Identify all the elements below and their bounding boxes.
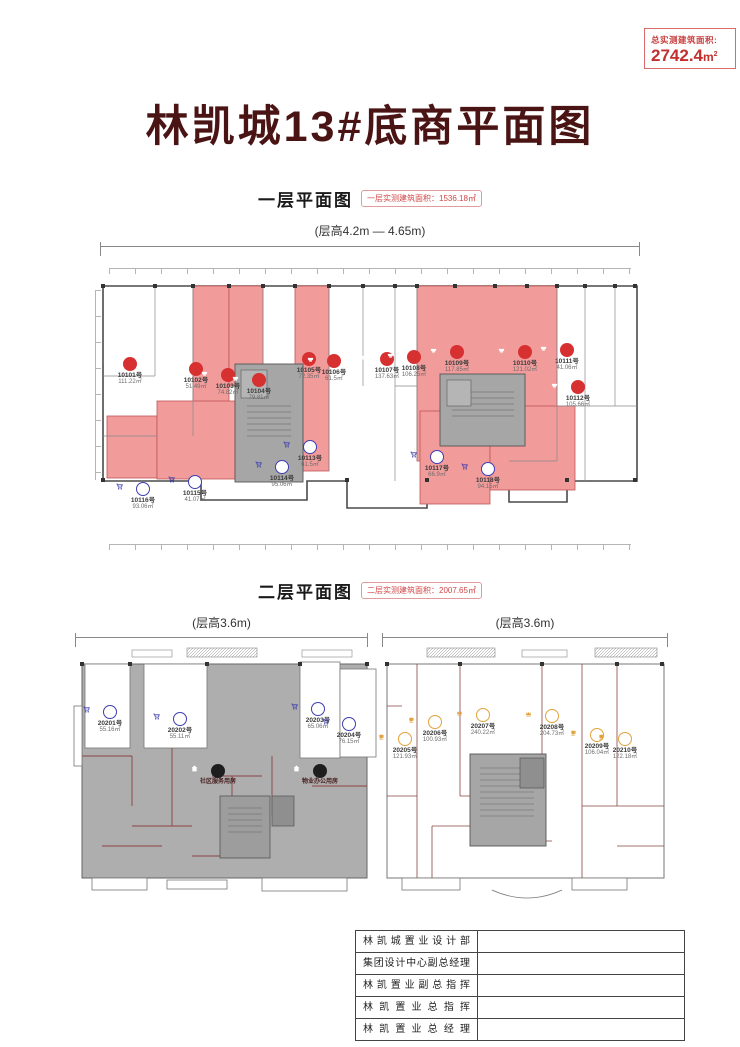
- cart-icon: [103, 705, 117, 719]
- dish-icon: [560, 343, 574, 357]
- signature-blank-cell: [478, 931, 684, 952]
- cart-icon: [173, 712, 187, 726]
- unit-label: 10109号 117.85㎡: [429, 345, 485, 374]
- signature-role-label: 林凯置业总经理: [356, 1019, 478, 1040]
- floor2-plan: 20201号 55.16㎡ 20202号 55.11㎡ 20203号 65.06…: [72, 646, 672, 901]
- total-area-unit: m2: [703, 50, 718, 64]
- unit-label: 20204号 76.15㎡: [321, 717, 377, 746]
- unit-area: 121.93㎡: [377, 754, 433, 761]
- unit-area: 105.66㎡: [550, 402, 606, 409]
- signature-row: 林凯置业总经理: [356, 1019, 684, 1040]
- unit-label: 20207号 240.22㎡: [455, 708, 511, 737]
- signature-row: 林凯置业副总指挥: [356, 975, 684, 997]
- signature-role-label: 林凯置业总指挥: [356, 997, 478, 1018]
- dish-icon: [123, 357, 137, 371]
- unit-label: 10106号 61.5㎡: [306, 354, 362, 383]
- floor2-area-badge: 二层实测建筑面积：2007.65㎡: [361, 582, 482, 599]
- unit-label: 10112号 105.66㎡: [550, 380, 606, 409]
- crown-icon: [545, 709, 559, 723]
- dish-icon: [518, 345, 532, 359]
- unit-area: 94.15㎡: [460, 484, 516, 491]
- floor2-dimension-line-left: [75, 637, 368, 638]
- unit-label: 20210号 122.18㎡: [597, 732, 653, 761]
- dish-icon: [327, 354, 341, 368]
- cart-icon: [342, 717, 356, 731]
- unit-label: 10104号 79.81㎡: [231, 373, 287, 402]
- dish-icon: [252, 373, 266, 387]
- cart-icon: [275, 460, 289, 474]
- unit-label: 10101号 111.22㎡: [102, 357, 158, 386]
- cart-icon: [430, 450, 444, 464]
- signature-role-label: 林凯置业副总指挥: [356, 975, 478, 996]
- cup-icon: [428, 715, 442, 729]
- floor1-section-header: 一层平面图 一层实测建筑面积：1536.18㎡: [0, 186, 740, 211]
- signature-role-label: 林凯城置业设计部: [356, 931, 478, 952]
- unit-area: 117.85㎡: [429, 367, 485, 374]
- signature-blank-cell: [478, 953, 684, 974]
- signature-row: 集团设计中心副总经理: [356, 953, 684, 975]
- unit-area: 41.06㎡: [539, 365, 595, 372]
- total-area-label: 总实测建筑面积:: [651, 34, 729, 46]
- signature-blank-cell: [478, 997, 684, 1018]
- cart-icon: [188, 475, 202, 489]
- plan-sheet: 总实测建筑面积: 2742.4m2 林凯城13#底商平面图 一层平面图 一层实测…: [0, 0, 740, 1047]
- unit-area: 95.06㎡: [254, 482, 310, 489]
- page-title: 林凯城13#底商平面图: [0, 92, 740, 154]
- unit-area: 61.5㎡: [306, 376, 362, 383]
- unit-area: 122.18㎡: [597, 754, 653, 761]
- unit-area: 76.15㎡: [321, 739, 377, 746]
- cart-icon: [481, 462, 495, 476]
- floor1-area-badge: 一层实测建筑面积：1536.18㎡: [361, 190, 482, 207]
- floor1-section-title: 一层平面图: [258, 186, 353, 211]
- unit-label: 10111号 41.06㎡: [539, 343, 595, 372]
- dish-icon: [407, 350, 421, 364]
- floor1-dimension-line: [100, 246, 640, 247]
- facility-name: 物业办公用房: [292, 779, 348, 786]
- unit-label: 20201号 55.16㎡: [82, 705, 138, 734]
- floor2-plan-drawing: [72, 646, 672, 901]
- signature-blank-cell: [478, 1019, 684, 1040]
- dish-icon: [450, 345, 464, 359]
- total-area-box: 总实测建筑面积: 2742.4m2: [644, 28, 736, 69]
- facility-label: 社区服务用房: [190, 764, 246, 786]
- unit-label: 10114号 95.06㎡: [254, 460, 310, 489]
- floor2-height-label-left: (层高3.6m): [75, 614, 368, 631]
- house-icon: [313, 764, 327, 778]
- dish-icon: [571, 380, 585, 394]
- unit-label: 10118号 94.15㎡: [460, 462, 516, 491]
- unit-label: 10117号 66.9㎡: [409, 450, 465, 479]
- unit-area: 93.06㎡: [115, 504, 171, 511]
- unit-area: 240.22㎡: [455, 730, 511, 737]
- signature-role-label: 集团设计中心副总经理: [356, 953, 478, 974]
- facility-label: 物业办公用房: [292, 764, 348, 786]
- unit-label: 10115号 41.07㎡: [167, 475, 223, 504]
- cart-icon: [303, 440, 317, 454]
- unit-area: 41.07㎡: [167, 497, 223, 504]
- floor1-height-label: (层高4.2m — 4.65m): [0, 222, 740, 239]
- unit-area: 100.93㎡: [407, 737, 463, 744]
- cup-icon: [618, 732, 632, 746]
- floor2-dimension-line-right: [382, 637, 668, 638]
- signature-row: 林凯置业总指挥: [356, 997, 684, 1019]
- facility-name: 社区服务用房: [190, 779, 246, 786]
- total-area-value: 2742.4m2: [651, 47, 729, 64]
- unit-area: 79.81㎡: [231, 395, 287, 402]
- cart-icon: [311, 702, 325, 716]
- unit-area: 55.11㎡: [152, 734, 208, 741]
- crown-icon: [476, 708, 490, 722]
- floor2-section-header: 二层平面图 二层实测建筑面积：2007.65㎡: [0, 578, 740, 603]
- floor2-section-title: 二层平面图: [258, 578, 353, 603]
- unit-area: 111.22㎡: [102, 379, 158, 386]
- unit-area: 66.9㎡: [409, 472, 465, 479]
- unit-label: 10116号 93.06㎡: [115, 482, 171, 511]
- signature-table: 林凯城置业设计部 集团设计中心副总经理 林凯置业副总指挥 林凯置业总指挥 林凯置…: [355, 930, 685, 1041]
- unit-area: 55.16㎡: [82, 727, 138, 734]
- signature-row: 林凯城置业设计部: [356, 931, 684, 953]
- floor2-height-label-right: (层高3.6m): [382, 614, 668, 631]
- cart-icon: [136, 482, 150, 496]
- floor1-plan: 10101号 111.22㎡ 10102号 51.49㎡ 10103号 74.8…: [95, 256, 645, 556]
- house-icon: [211, 764, 225, 778]
- signature-blank-cell: [478, 975, 684, 996]
- total-area-number: 2742.4: [651, 46, 703, 65]
- unit-label: 20202号 55.11㎡: [152, 712, 208, 741]
